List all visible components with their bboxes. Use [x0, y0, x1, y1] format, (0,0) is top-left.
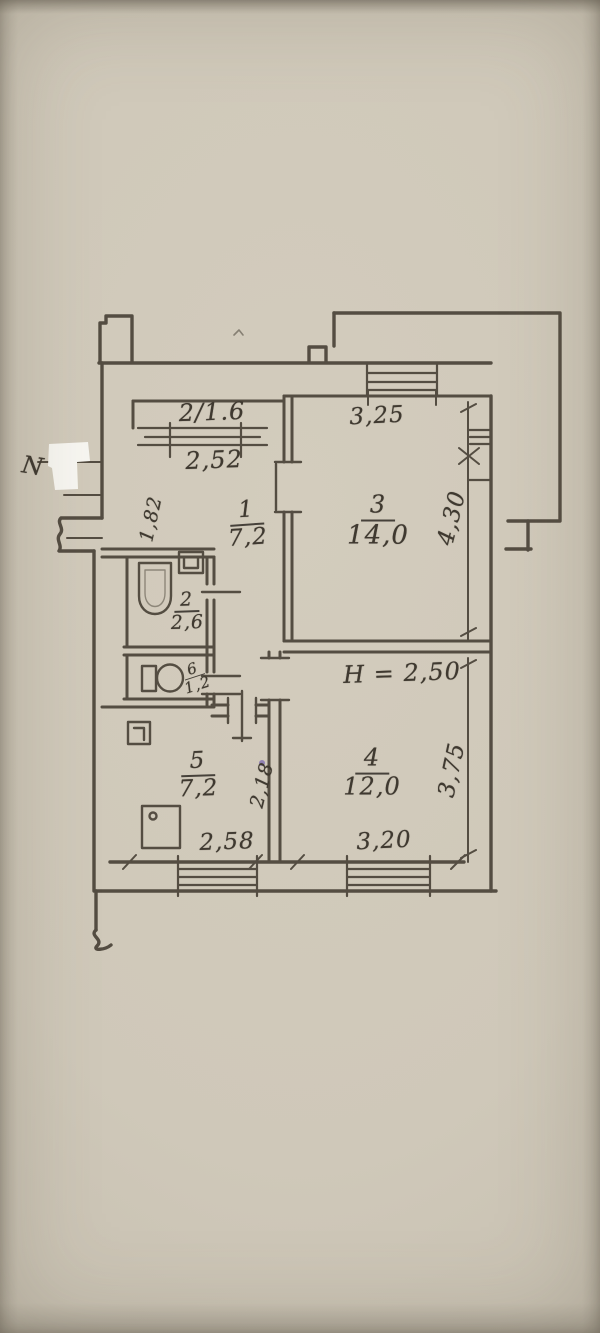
room-label-bedroom: 4 12,0 [343, 746, 400, 801]
floor-plan-drawing [0, 0, 600, 1333]
bathtub [139, 563, 171, 614]
stove [142, 806, 180, 848]
room-area-hall: 7,2 [227, 524, 268, 552]
interior-walls [102, 396, 491, 862]
room-label-hall: 1 7,2 [225, 496, 268, 551]
room-area-bathroom: 2,6 [170, 611, 204, 633]
room-label-living: 3 14,0 [347, 493, 409, 550]
balcony-label: 2/1.6 [178, 397, 245, 427]
dim-balcony-width: 2,52 [185, 445, 243, 475]
room-label-kitchen: 5 7,2 [177, 748, 218, 802]
room-number-bathroom: 2 [174, 589, 200, 612]
room-area-bedroom: 12,0 [343, 775, 400, 801]
dim-living-width: 3,25 [349, 402, 406, 431]
room-number-bedroom: 4 [355, 746, 389, 775]
ceiling-height-label: H = 2,50 [343, 657, 462, 689]
floor-plan-photo: 2/1.6 2,52 1,82 1 7,2 3,25 3 14,0 4,30 H… [0, 0, 600, 1333]
dim-bedroom-width: 3,20 [356, 827, 413, 856]
toilet [142, 665, 183, 692]
correction-patch [48, 442, 90, 490]
north-label: N [20, 450, 46, 481]
room-label-bathroom: 2 2,6 [170, 589, 205, 633]
kitchen-vent-box [128, 722, 150, 744]
bathroom-sink [179, 552, 203, 573]
room-number-living: 3 [361, 493, 395, 522]
room-number-hall: 1 [228, 497, 263, 527]
room-number-kitchen: 5 [180, 748, 215, 777]
room-area-kitchen: 7,2 [178, 776, 218, 802]
dim-kitchen-width: 2,58 [199, 828, 255, 856]
room-area-living: 14,0 [347, 521, 409, 549]
